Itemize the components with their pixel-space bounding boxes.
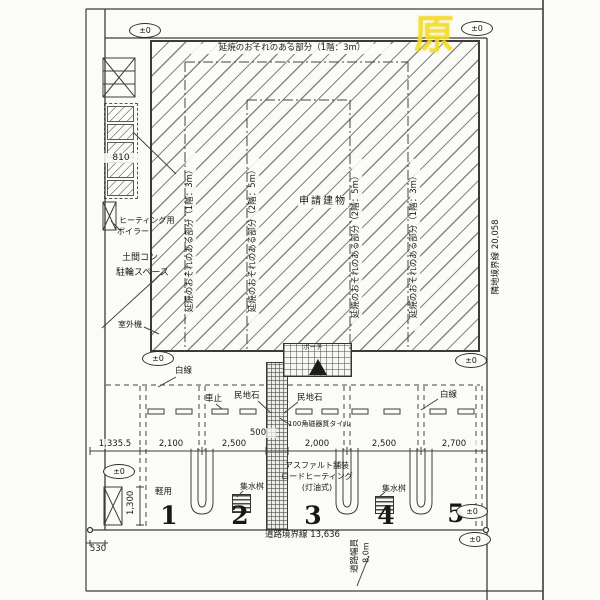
white-line-label-left: 白線 [175,367,192,377]
highlighter-stamp: 原 [414,2,454,60]
stall-number-2: 2 [228,501,252,530]
stall-number-4: 4 [374,501,398,530]
dim-2500a: 2,500 [210,439,258,449]
porch-label: ポーチ [303,344,323,351]
stall-number-3: 3 [301,501,325,530]
road-width-label: 道路幅員 [351,524,361,588]
fire-spread-lines [185,62,408,352]
boiler-label-1: ヒーティング用 [119,216,175,225]
dim-2100: 2,100 [147,439,195,449]
plan-linework [0,0,600,600]
kei-car-label: 軽用 [155,488,172,498]
dim-1335: 1,335.5 [91,439,139,449]
level-marker: ±0 [456,504,488,519]
fire-zone-line-label: 延焼のおそれのある部分（1階：3m） [410,159,420,331]
dim-530: 530 [84,545,112,555]
outdoor-unit-label: 室外機 [118,320,142,329]
asphalt-label-3: (灯油式) [277,483,357,492]
fire-zone-line-label: 延焼のおそれのある部分（2階：5m） [249,153,259,325]
level-marker: ±0 [142,351,174,366]
stall-number-1: 1 [157,501,181,530]
wheel-stop-blocks [148,409,474,414]
rack-width-dim: 810 [104,153,138,163]
level-marker: ±0 [103,464,135,479]
drain-label-right: 集水桝 [382,484,406,493]
level-marker: ±0 [461,21,493,36]
level-marker: ±0 [459,532,491,547]
fire-zone-line-label: 延焼のおそれのある部分（2階：5m） [352,159,362,331]
curb-stone-label-left: 民地石 [234,392,260,402]
road-boundary-label: 道路境界線 13,636 [265,531,340,541]
road-width-value: 8.0m [361,533,370,573]
dim-2500b: 2,500 [360,439,408,449]
boiler-label-2: ボイラー [117,227,149,236]
tile-label: 100角磁器質タイル [288,420,350,428]
asphalt-label-1: アスファルト舗装 [277,461,357,470]
level-marker: ±0 [129,23,161,38]
fire-zone-line-label: 延焼のおそれのある部分（1階：3m） [186,153,196,325]
dim-2700: 2,700 [430,439,478,449]
dim-1300: 1,300 [127,481,137,525]
dim-500: 500 [240,428,276,438]
neighbor-boundary-label: 隣地境界線 20,058 [492,192,502,322]
dim-2000: 2,000 [293,439,341,449]
entrance-triangle-marker [309,359,327,375]
wheel-stop-label: 車止 [205,395,222,405]
site-plan-sheet: 原 ±0 ±0 ±0 ±0 ±0 ±0 ±0 延焼のおそれのある部分（1階：3m… [0,0,600,600]
fire-zone-top-label: 延焼のおそれのある部分（1階：3m） [191,44,393,54]
bike-space-label-1: 土間コン [122,253,158,263]
drain-label-left: 集水桝 [240,482,264,491]
curb-stone-label-right: 民地石 [297,394,323,404]
level-marker: ±0 [455,353,487,368]
gate-post-symbol [104,487,122,525]
asphalt-label-2: ロードヒーティング [277,472,357,481]
white-line-label-right: 白線 [440,391,457,401]
bike-space-label-2: 駐輪スペース [116,268,169,278]
stair-symbol [103,58,135,97]
building-label: 申請建物 [298,196,348,208]
